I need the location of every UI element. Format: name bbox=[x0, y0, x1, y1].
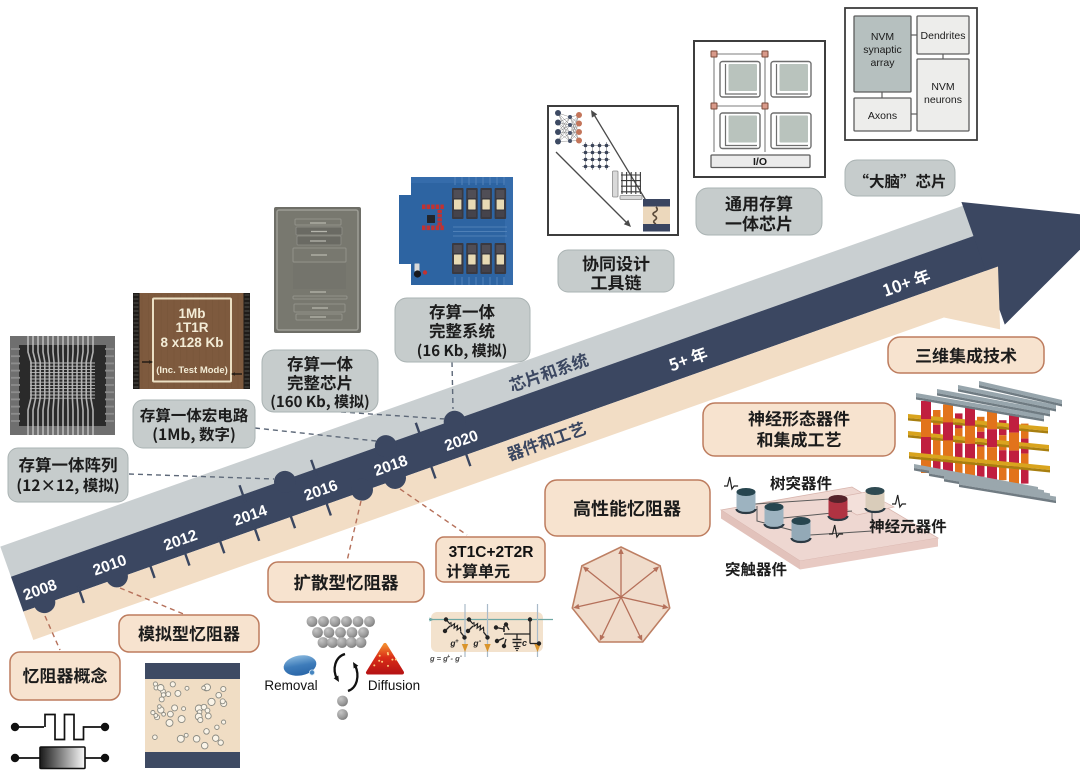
svg-text:NVM: NVM bbox=[931, 81, 954, 93]
svg-text:Axons: Axons bbox=[868, 110, 897, 122]
svg-text:c: c bbox=[522, 638, 527, 648]
svg-text:- g: - g bbox=[451, 654, 461, 663]
svg-text:1Mb: 1Mb bbox=[179, 306, 206, 321]
svg-text:neurons: neurons bbox=[924, 94, 962, 106]
svg-text:synaptic: synaptic bbox=[863, 44, 902, 56]
svg-text:Diffusion: Diffusion bbox=[368, 678, 420, 693]
svg-text:Removal: Removal bbox=[264, 678, 317, 693]
svg-text:NVM: NVM bbox=[871, 31, 894, 43]
svg-text:g = g: g = g bbox=[429, 654, 448, 663]
svg-text:1T1R: 1T1R bbox=[175, 320, 208, 335]
svg-text:I/O: I/O bbox=[753, 156, 767, 168]
svg-text:Dendrites: Dendrites bbox=[921, 30, 966, 42]
svg-text:3T1C+2T2R: 3T1C+2T2R bbox=[449, 544, 534, 561]
svg-text:+: + bbox=[455, 639, 459, 645]
svg-text:array: array bbox=[871, 57, 896, 69]
svg-text:8 x128 Kb: 8 x128 Kb bbox=[160, 335, 223, 350]
svg-text:(Inc. Test Mode): (Inc. Test Mode) bbox=[156, 365, 228, 376]
svg-text:-: - bbox=[460, 654, 462, 660]
